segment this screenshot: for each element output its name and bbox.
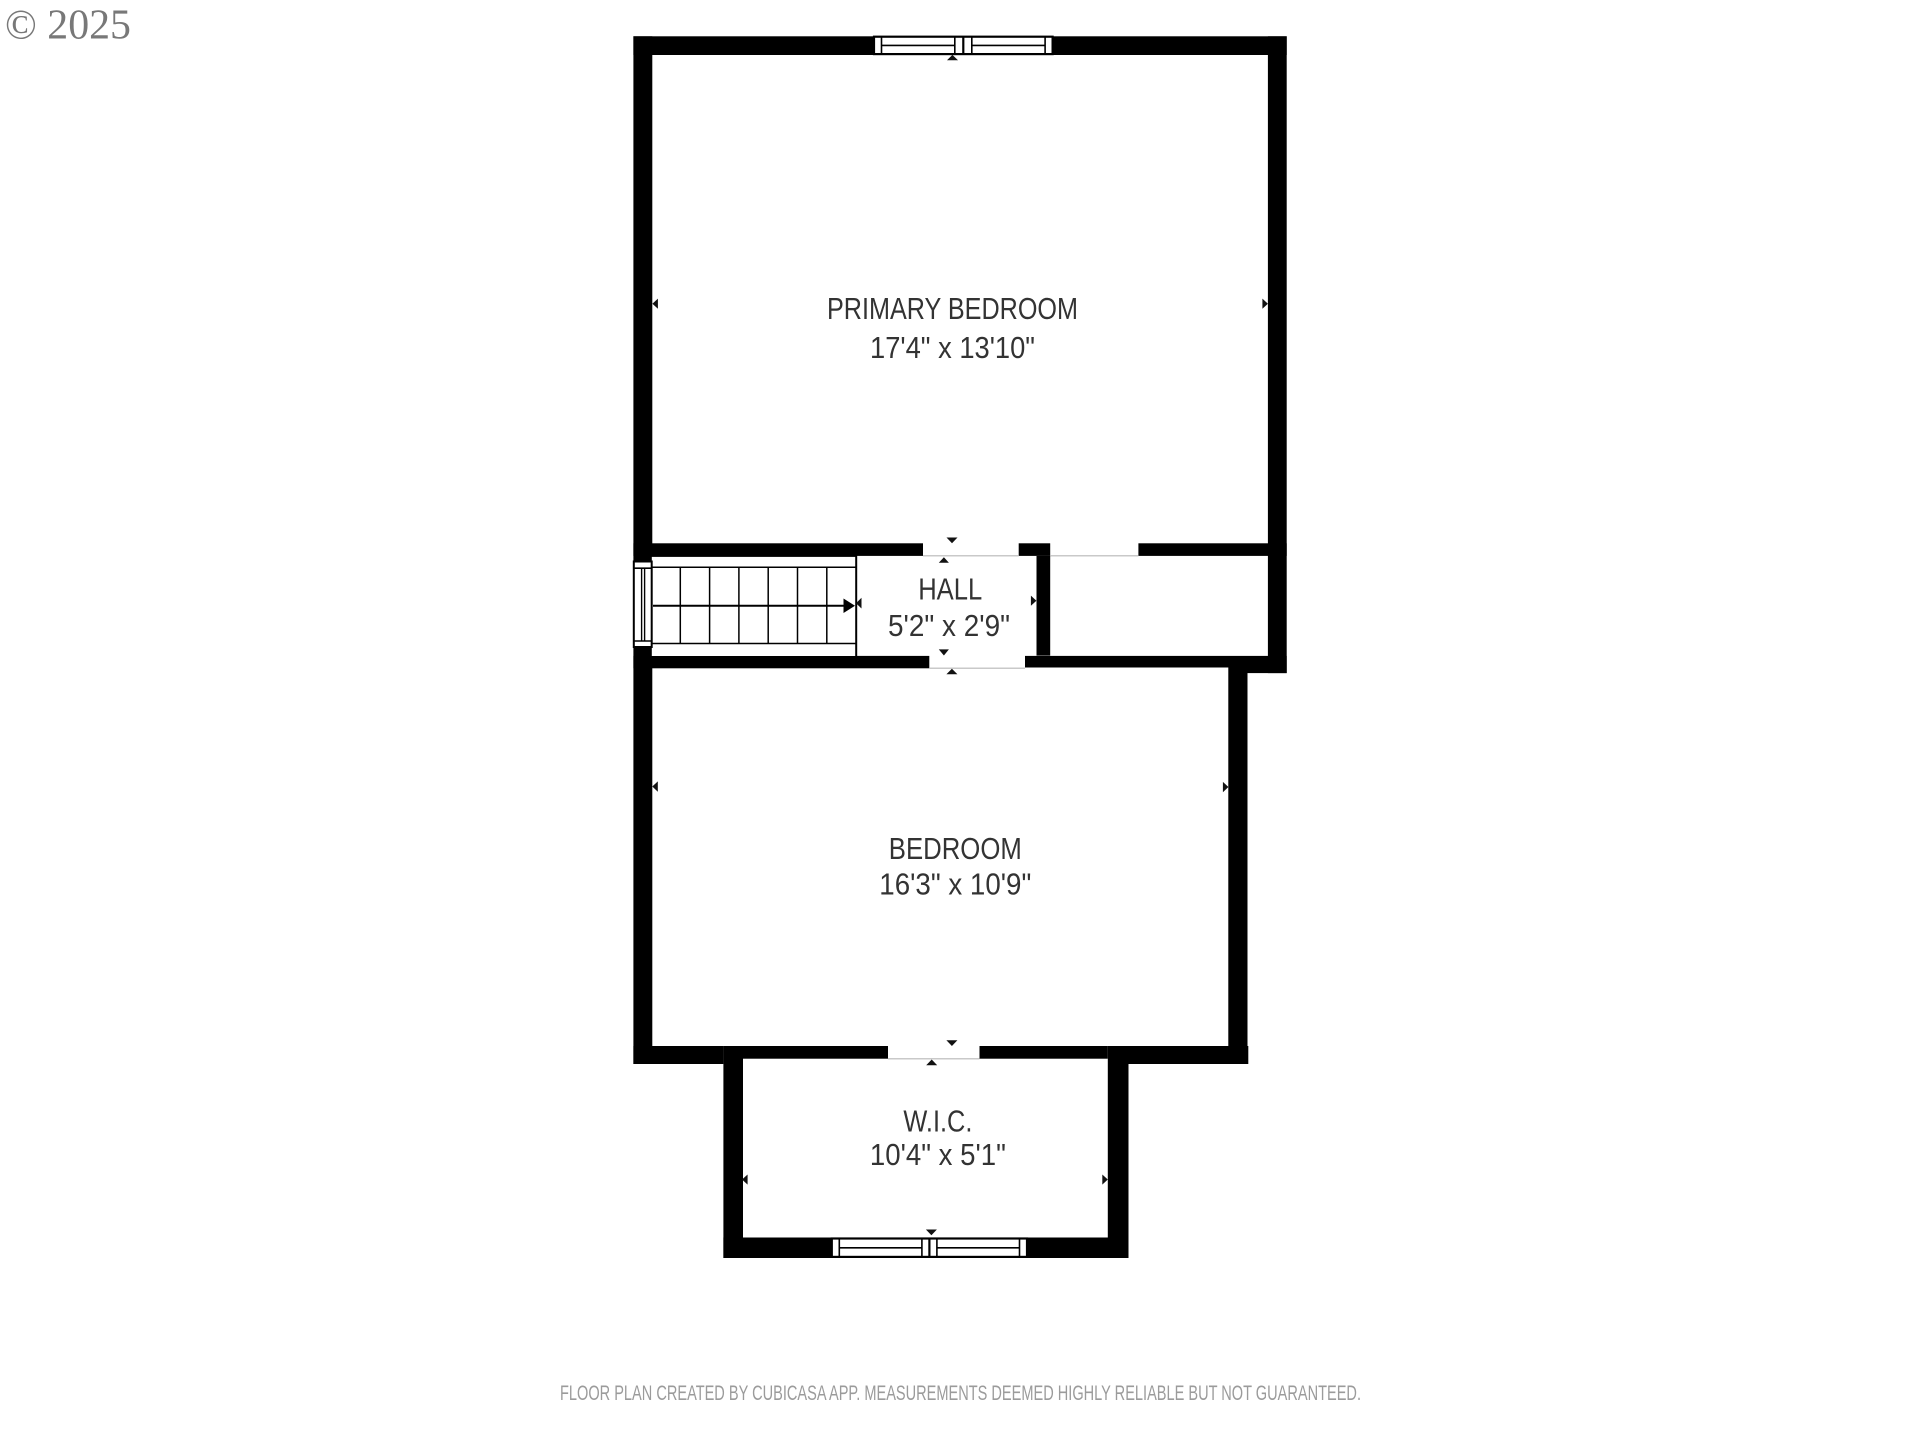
svg-text:© 2025: © 2025	[5, 3, 131, 49]
svg-text:FLOOR PLAN CREATED BY CUBICASA: FLOOR PLAN CREATED BY CUBICASA APP. MEAS…	[560, 1381, 1361, 1405]
svg-text:W.I.C.: W.I.C.	[903, 1104, 972, 1139]
svg-text:10'4" x 5'1": 10'4" x 5'1"	[870, 1137, 1006, 1172]
svg-text:HALL: HALL	[918, 572, 982, 607]
svg-text:5'2" x 2'9": 5'2" x 2'9"	[888, 608, 1010, 643]
svg-text:PRIMARY BEDROOM: PRIMARY BEDROOM	[827, 291, 1078, 326]
svg-text:16'3" x 10'9": 16'3" x 10'9"	[879, 866, 1031, 901]
svg-text:17'4" x 13'10": 17'4" x 13'10"	[870, 330, 1035, 365]
svg-text:BEDROOM: BEDROOM	[889, 831, 1022, 866]
